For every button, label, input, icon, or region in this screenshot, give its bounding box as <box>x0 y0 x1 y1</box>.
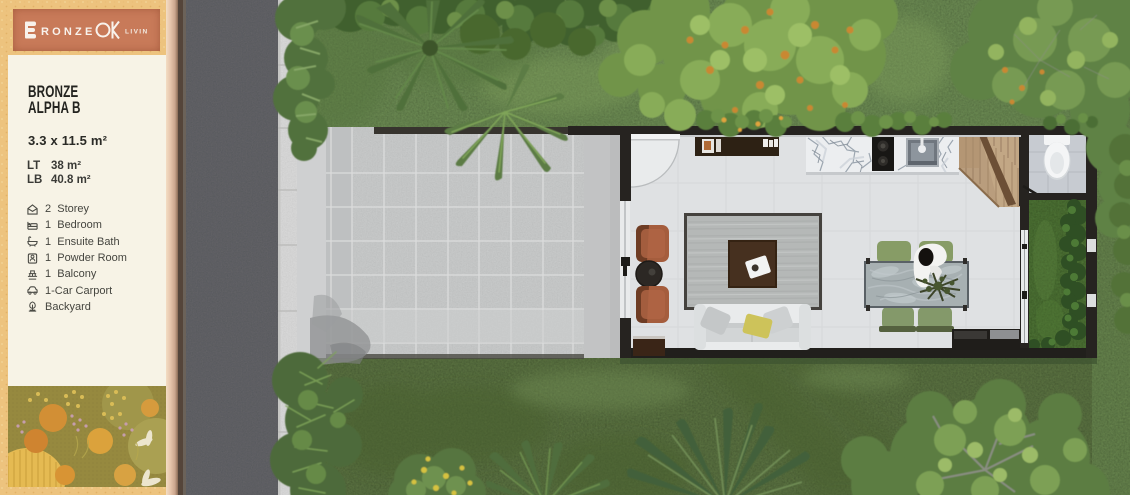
svg-text:RONZE: RONZE <box>41 26 96 38</box>
svg-text:LIVIN: LIVIN <box>125 29 149 36</box>
